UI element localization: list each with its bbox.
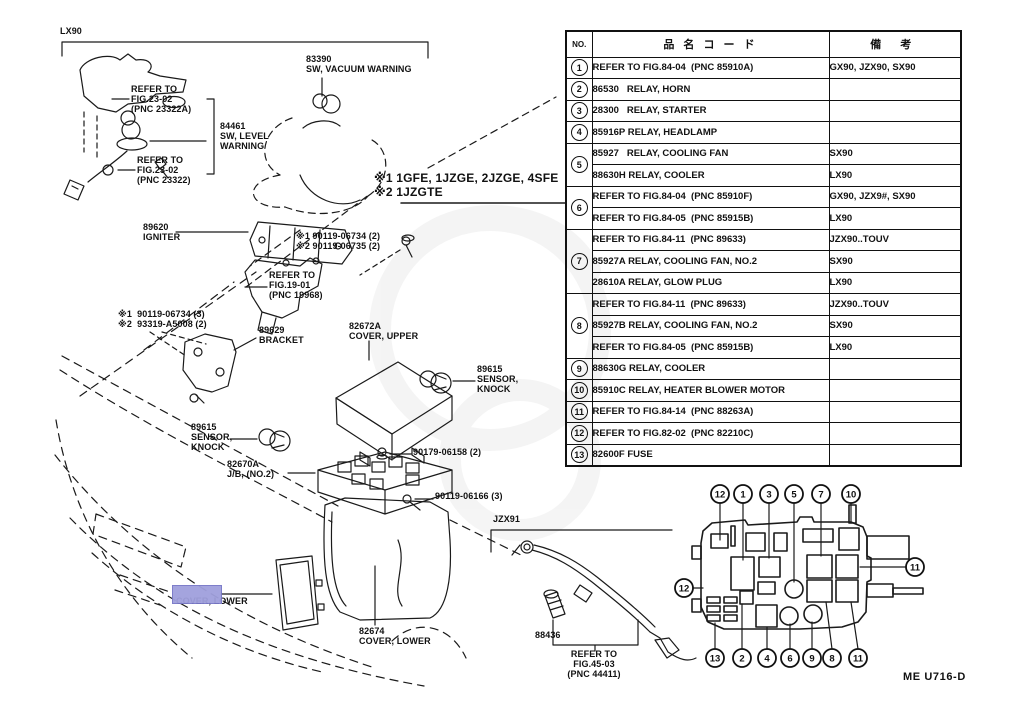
row-number-cell: 7 (566, 229, 592, 294)
row-number-cell: 1 (566, 57, 592, 79)
circled-number: 2 (571, 81, 588, 98)
remarks-cell: GX90, JZX90, SX90 (829, 57, 961, 79)
remarks-cell: JZX90..TOUV (829, 294, 961, 316)
part-name-cell: 85927A RELAY, COOLING FAN, NO.2 (592, 251, 829, 273)
part-name-cell: 85927 RELAY, COOLING FAN (592, 143, 829, 165)
table-row: 988630G RELAY, COOLER (566, 358, 961, 380)
label-bolt-90119: 90119-06166 (3) (435, 491, 503, 501)
row-number-cell: 2 (566, 79, 592, 101)
row-number-cell: 11 (566, 401, 592, 423)
label-engine-note-2: ※2 1JZGTE (374, 186, 443, 199)
callout-1: 1 (734, 485, 752, 503)
svg-text:9: 9 (809, 654, 814, 665)
table-row: 12REFER TO FIG.82-02 (PNC 82210C) (566, 423, 961, 445)
part-name-cell: 85910C RELAY, HEATER BLOWER MOTOR (592, 380, 829, 402)
row-number-cell: 8 (566, 294, 592, 359)
header-remarks: 備 考 (829, 31, 961, 57)
label-cover-lower-82674: 82674 COVER, LOWER (359, 626, 431, 646)
table-row: 85927B RELAY, COOLING FAN, NO.2SX90 (566, 315, 961, 337)
remarks-cell (829, 423, 961, 445)
table-row: 85927A RELAY, COOLING FAN, NO.2SX90 (566, 251, 961, 273)
part-name-cell: REFER TO FIG.84-11 (PNC 89633) (592, 229, 829, 251)
circled-number: 7 (571, 253, 588, 270)
circled-number: 4 (571, 124, 588, 141)
header-name: 品 名 コ ー ド (592, 31, 829, 57)
callout-4: 4 (758, 649, 776, 667)
row-number-cell: 4 (566, 122, 592, 144)
table-row: 8REFER TO FIG.84-11 (PNC 89633)JZX90..TO… (566, 294, 961, 316)
callout-8: 8 (823, 649, 841, 667)
svg-text:6: 6 (787, 654, 792, 665)
table-row: 88630H RELAY, COOLERLX90 (566, 165, 961, 187)
svg-text:12: 12 (679, 584, 690, 595)
part-name-cell: REFER TO FIG.84-05 (PNC 85915B) (592, 337, 829, 359)
row-number-cell: 12 (566, 423, 592, 445)
circled-number: 5 (571, 156, 588, 173)
callout-9: 9 (803, 649, 821, 667)
circled-number: 3 (571, 102, 588, 119)
row-number-cell: 10 (566, 380, 592, 402)
table-row: 585927 RELAY, COOLING FANSX90 (566, 143, 961, 165)
highlight-box[interactable] (172, 585, 222, 604)
cover-plate-art (221, 556, 324, 630)
callout-12: 12 (675, 579, 693, 597)
header-no: NO. (566, 31, 592, 57)
part-name-cell: 28610A RELAY, GLOW PLUG (592, 272, 829, 294)
remarks-cell (829, 358, 961, 380)
parts-catalog-figure: 121357101324698111211 LX90 REFER TO FIG.… (0, 0, 1024, 727)
label-igniter: 89620 IGNITER (143, 222, 180, 242)
label-sw-level: 84461 SW, LEVEL WARNING (220, 121, 269, 151)
remarks-cell: SX90 (829, 251, 961, 273)
label-refer-1901: REFER TO FIG.19-01 (PNC 19968) (269, 270, 323, 300)
part-name-cell: 86530 RELAY, HORN (592, 79, 829, 101)
label-knock-sensor-right: 89615 SENSOR, KNOCK (477, 364, 518, 394)
circled-number: 1 (571, 59, 588, 76)
table-row: 328300 RELAY, STARTER (566, 100, 961, 122)
label-engine-note-1: ※1 1GFE, 1JZGE, 2JZGE, 4SFE (374, 172, 558, 185)
table-row: 1085910C RELAY, HEATER BLOWER MOTOR (566, 380, 961, 402)
row-number-cell: 3 (566, 100, 592, 122)
remarks-cell (829, 444, 961, 466)
lower-cover-tub-art (324, 498, 451, 625)
svg-text:11: 11 (910, 563, 921, 574)
table-row: 28610A RELAY, GLOW PLUGLX90 (566, 272, 961, 294)
circled-number: 13 (571, 446, 588, 463)
remarks-cell (829, 79, 961, 101)
part-name-cell: 88630H RELAY, COOLER (592, 165, 829, 187)
label-bolts-a: ※1 90119-06734 (2) ※2 90119-06735 (2) (296, 231, 380, 251)
table-row: 1REFER TO FIG.84-04 (PNC 85910A)GX90, JZ… (566, 57, 961, 79)
part-name-cell: REFER TO FIG.84-04 (PNC 85910A) (592, 57, 829, 79)
part-name-cell: 28300 RELAY, STARTER (592, 100, 829, 122)
label-sw-vacuum: 83390 SW, VACUUM WARNING (306, 54, 412, 74)
label-refer-2302: REFER TO FIG.23-02 (PNC 23322) (137, 155, 191, 185)
svg-text:7: 7 (818, 490, 823, 501)
svg-text:4: 4 (764, 654, 770, 665)
label-bracket-89629: 89629 BRACKET (259, 325, 304, 345)
label-jb-no2: 82670A J/B, (NO.2) (227, 459, 274, 479)
table-row: 485916P RELAY, HEADLAMP (566, 122, 961, 144)
table-row: REFER TO FIG.84-05 (PNC 85915B)LX90 (566, 208, 961, 230)
svg-text:13: 13 (710, 654, 721, 665)
circled-number: 12 (571, 425, 588, 442)
row-number-cell: 5 (566, 143, 592, 186)
part-name-cell: 85927B RELAY, COOLING FAN, NO.2 (592, 315, 829, 337)
callout-3: 3 (760, 485, 778, 503)
fusebox-callouts: 121357101324698111211 (675, 485, 924, 667)
table-row: 7REFER TO FIG.84-11 (PNC 89633)JZX90..TO… (566, 229, 961, 251)
part-name-cell: REFER TO FIG.84-05 (PNC 85915B) (592, 208, 829, 230)
knock-sensor-left-art (230, 429, 290, 451)
svg-text:2: 2 (739, 654, 744, 665)
remarks-cell: LX90 (829, 337, 961, 359)
callout-10: 10 (842, 485, 860, 503)
circled-number: 11 (571, 403, 588, 420)
svg-text:8: 8 (829, 654, 834, 665)
vacuum-warning-switch-art (253, 78, 385, 213)
callout-6: 6 (781, 649, 799, 667)
row-number-cell: 6 (566, 186, 592, 229)
circled-number: 8 (571, 317, 588, 334)
callout-7: 7 (812, 485, 830, 503)
remarks-cell (829, 100, 961, 122)
part-name-cell: 85916P RELAY, HEADLAMP (592, 122, 829, 144)
remarks-cell: SX90 (829, 143, 961, 165)
table-row: 1382600F FUSE (566, 444, 961, 466)
figure-code: ME U716-D (903, 672, 966, 682)
label-knock-sensor-left: 89615 SENSOR, KNOCK (191, 422, 232, 452)
remarks-cell: JZX90..TOUV (829, 229, 961, 251)
label-refer-2302a: REFER TO FIG.23-02 (PNC 23322A) (131, 84, 191, 114)
circled-number: 10 (571, 382, 588, 399)
section-label-lx90: LX90 (60, 26, 82, 36)
remarks-cell (829, 401, 961, 423)
callout-13: 13 (706, 649, 724, 667)
callout-11: 11 (849, 649, 867, 667)
svg-text:3: 3 (766, 490, 771, 501)
remarks-cell: SX90 (829, 315, 961, 337)
callout-12: 12 (711, 485, 729, 503)
svg-text:12: 12 (715, 490, 726, 501)
remarks-cell: LX90 (829, 165, 961, 187)
table-row: 286530 RELAY, HORN (566, 79, 961, 101)
part-name-cell: 88630G RELAY, COOLER (592, 358, 829, 380)
label-cover-upper: 82672A COVER, UPPER (349, 321, 418, 341)
svg-text:5: 5 (791, 490, 797, 501)
callout-leaders (693, 503, 906, 649)
part-name-cell: REFER TO FIG.84-14 (PNC 88263A) (592, 401, 829, 423)
table-row: 6REFER TO FIG.84-04 (PNC 85910F)GX90, JZ… (566, 186, 961, 208)
svg-text:10: 10 (846, 490, 857, 501)
part-name-cell: REFER TO FIG.82-02 (PNC 82210C) (592, 423, 829, 445)
part-name-cell: REFER TO FIG.84-04 (PNC 85910F) (592, 186, 829, 208)
callout-11: 11 (906, 558, 924, 576)
label-bolts-b: ※1 90119-06734 (3) ※2 93319-A5008 (2) (118, 309, 207, 329)
jzx91-hose-art (512, 541, 696, 660)
bracket-art (150, 332, 256, 403)
remarks-cell: GX90, JZX9#, SX90 (829, 186, 961, 208)
table-header-row: NO. 品 名 コ ー ド 備 考 (566, 31, 961, 57)
label-refer-4503: REFER TO FIG.45-03 (PNC 44411) (558, 649, 630, 679)
section-label-jzx91: JZX91 (493, 514, 520, 524)
remarks-cell (829, 380, 961, 402)
parts-table: NO. 品 名 コ ー ド 備 考 1REFER TO FIG.84-04 (P… (565, 30, 962, 467)
remarks-cell: LX90 (829, 208, 961, 230)
table-row: 11REFER TO FIG.84-14 (PNC 88263A) (566, 401, 961, 423)
remarks-cell: LX90 (829, 272, 961, 294)
svg-text:1: 1 (740, 490, 746, 501)
table-row: REFER TO FIG.84-05 (PNC 85915B)LX90 (566, 337, 961, 359)
callout-2: 2 (733, 649, 751, 667)
row-number-cell: 9 (566, 358, 592, 380)
part-name-cell: 82600F FUSE (592, 444, 829, 466)
remarks-cell (829, 122, 961, 144)
label-88436: 88436 (535, 630, 561, 640)
part-name-cell: REFER TO FIG.84-11 (PNC 89633) (592, 294, 829, 316)
callout-5: 5 (785, 485, 803, 503)
svg-text:11: 11 (853, 654, 864, 665)
label-bolt-90179: 90179-06158 (2) (413, 447, 481, 457)
circled-number: 6 (571, 199, 588, 216)
row-number-cell: 13 (566, 444, 592, 466)
circled-number: 9 (571, 360, 588, 377)
knock-sensor-right-art (420, 371, 475, 393)
